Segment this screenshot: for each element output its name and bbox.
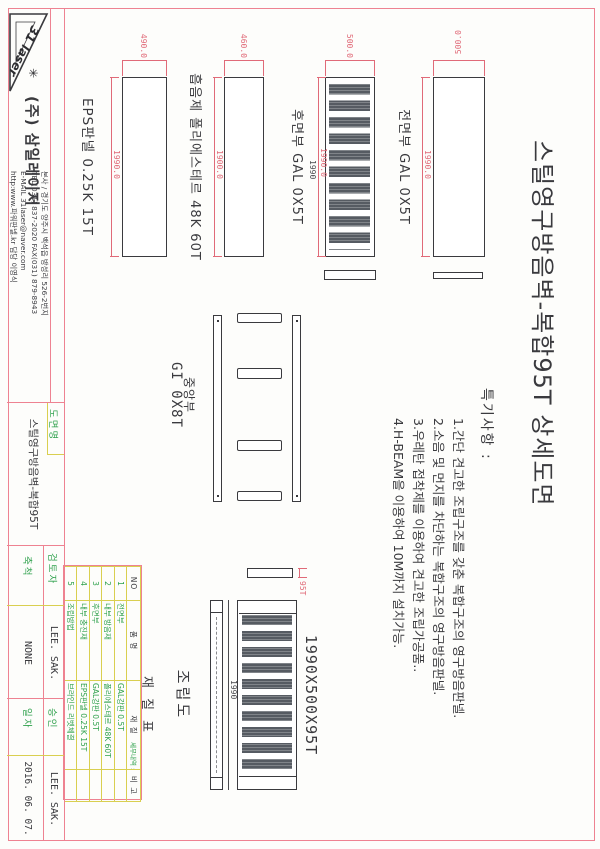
header-item: 품 명 [127, 601, 141, 681]
cell-remark [65, 770, 77, 802]
contact-line-2: TEL(031) 837-2020 FAX(031) 879-8943 [28, 171, 38, 403]
reviewer-label: 검토자 [46, 553, 60, 585]
title-block-strip: 31 laser ✳ (주) 삼일레이저 본사 / 경기도 양주시 백석읍 방성… [8, 8, 65, 841]
cell-remark [89, 770, 101, 802]
panel-rear-width-dim: 500.0 [345, 30, 354, 58]
logo-section-divider [50, 8, 51, 402]
note-line-2: 2.소음 및 먼지를 차단하는 복합구조의 영구방음판넬. [430, 418, 449, 695]
assembly-end-rail-left [239, 613, 296, 614]
label-divider [7, 605, 44, 606]
panel-front-width-dim-line [433, 60, 485, 61]
center-frame-rail-bottom [213, 315, 222, 502]
panel-front-edge-view [433, 272, 483, 279]
panel-rear-width-dim-line [325, 60, 375, 61]
header-remark: 비 고 [127, 770, 141, 802]
panel-absorber-length-dim: 1900.0 [215, 150, 224, 179]
assembly-thickness-view [247, 568, 293, 578]
panel-absorber-label: 흡음제 폴리에스테르 48K 60T [187, 47, 206, 287]
assembly-length-dim: 1990 [229, 680, 238, 699]
assembly-thickness-dim-line [299, 568, 300, 578]
panel-eps-label: EPS판넬 0.25K 15T [79, 77, 99, 257]
center-frame-crossbar-2 [237, 368, 282, 379]
panel-eps-rect [122, 77, 167, 257]
contact-line-4: http:www.파워판넬.kr 담당 이영식 [8, 171, 18, 403]
side-profile-dashes [216, 617, 217, 773]
table-row: 2 내부 방음재 폴리에스테르 48K 60T [102, 567, 114, 802]
assembly-end-rail-right [239, 776, 296, 777]
cell-material: 폴리에스테르 48K 60T [102, 681, 114, 770]
center-frame-crossbar-1 [237, 313, 282, 323]
assembly-panel-rect [237, 600, 297, 790]
assembly-label: 조립도 [173, 600, 194, 790]
panel-absorber-width-dim-line [224, 60, 264, 61]
assembly-thickness-dim: 95T [298, 581, 307, 595]
contact-line-1: 본사 / 경기도 양주시 백석읍 방성리 526-2번지 [39, 171, 49, 403]
cell-remark [77, 770, 89, 802]
panel-rear-length-dim: 1990.0 [319, 148, 328, 177]
drawing-sheet: 스틸영구방음벽-복합95T 상세도면 특기사항 : 1.간단 견고한 조립구조를… [0, 0, 600, 849]
cell-material: 브라인드 리벳체결 [65, 681, 77, 770]
label-divider [44, 755, 64, 756]
material-table-header-row: NO 품 명 재 질 비 고 [127, 567, 141, 802]
side-profile-endcap-right [211, 777, 222, 789]
date-value: 2016. 06. 07. [22, 756, 33, 841]
panel-eps-width-dim: 490.0 [139, 30, 148, 58]
divider [7, 698, 64, 699]
panel-absorber-rect [224, 77, 264, 257]
header-no: NO [127, 567, 141, 601]
cell-no: 4 [77, 567, 89, 601]
page-title: 스틸영구방음벽-복합95T 상세도면 [527, 140, 562, 560]
reviewer-value: LEE. SAK. [48, 610, 59, 696]
assembly-length-dim-line [228, 600, 229, 790]
material-table: NO 품 명 재 질 비 고 1 전면부 GAL강판 0.5T 2 내부 방음재… [63, 565, 142, 800]
scale-value: NONE [22, 610, 33, 696]
approver-label: 승인 [46, 708, 60, 729]
table-row: 4 내부 충진재 EPS판넬 0.25K 15T [77, 567, 89, 802]
drawing-name-label-cell: 도면명 [47, 403, 64, 455]
panel-eps-width-dim-line [122, 60, 167, 61]
note-line-3: 3.우레탄 접착제를 이용하여 견고한 조립가공품.. [410, 418, 429, 672]
cell-item: 조립방법 [65, 601, 77, 681]
date-label: 일자 [21, 708, 35, 729]
center-frame-rail-top [292, 315, 301, 502]
panel-front-rect [433, 77, 485, 257]
divider [7, 545, 64, 546]
scale-label: 축척 [21, 556, 35, 577]
center-part-label-line2: GI 0X8T [168, 340, 184, 450]
label-divider [44, 605, 64, 606]
drawing-name: 스틸영구방음벽-복합95T [26, 404, 41, 544]
panel-rear-louver-slots [330, 84, 371, 250]
panel-front-width-dim: 500.0 [454, 30, 463, 58]
panel-rear-label: 후면부 GAL 0X5T [289, 77, 308, 257]
side-profile-endcap-left [211, 601, 222, 613]
cell-remark [102, 770, 114, 802]
panel-eps-length-dim: 1990.0 [112, 150, 121, 179]
notes-heading: 특기사항 : [477, 388, 497, 461]
center-frame-crossbar-3 [237, 440, 282, 451]
note-line-4: 4.H-BEAM을 이용하여 10M까지 설치가능. [390, 418, 409, 648]
table-row: 3 후면부 GAL강판 0.5T [89, 567, 101, 802]
note-line-1: 1.간단 견고한 조립구조를 갖춘 복합구조의 영구방음판넬. [450, 418, 469, 718]
cell-item: 내부 방음재 [102, 601, 114, 681]
panel-front-length-dim: 1990.0 [423, 150, 432, 179]
panel-rear-length-dim2: 1990 [308, 160, 317, 179]
assembly-louver-slots [242, 615, 292, 775]
contact-line-3: E-MAIL 31laser@naver.com [18, 171, 28, 403]
cell-material: EPS판넬 0.25K 15T [77, 681, 89, 770]
table-row: 5 조립방법 브라인드 리벳체결 [65, 567, 77, 802]
cell-item: 내부 충진재 [77, 601, 89, 681]
contact-block: 본사 / 경기도 양주시 백석읍 방성리 526-2번지 TEL(031) 83… [8, 171, 49, 403]
cell-item: 후면부 [89, 601, 101, 681]
table-row: 1 전면부 GAL강판 0.5T [114, 567, 126, 802]
center-frame-crossbar-4 [237, 491, 282, 501]
cell-no: 5 [65, 567, 77, 601]
cell-remark [114, 770, 126, 802]
cell-no: 1 [114, 567, 126, 601]
drawing-name-label: 도면명 [47, 409, 61, 441]
panel-rear-edge-view [324, 270, 376, 280]
cell-material: GAL강판 0.5T [89, 681, 101, 770]
header-material: 재 질 [127, 681, 141, 770]
title-block-row-divider [43, 545, 44, 841]
company-logo: 31 laser ✳ [8, 12, 49, 94]
panel-front-label: 전면부 GAL 0X5T [396, 77, 415, 257]
cell-item: 전면부 [114, 601, 126, 681]
approver-value: LEE. SAK. [48, 758, 59, 840]
cell-no: 2 [102, 567, 114, 601]
cell-no: 3 [89, 567, 101, 601]
cell-material: GAL강판 0.5T [114, 681, 126, 770]
panel-rear-rect [325, 77, 375, 257]
assembly-side-profile [210, 600, 223, 790]
assembly-size-label: 1990X500X95T [302, 600, 320, 790]
starburst-icon: ✳ [26, 68, 40, 78]
panel-absorber-width-dim: 460.0 [239, 30, 248, 58]
